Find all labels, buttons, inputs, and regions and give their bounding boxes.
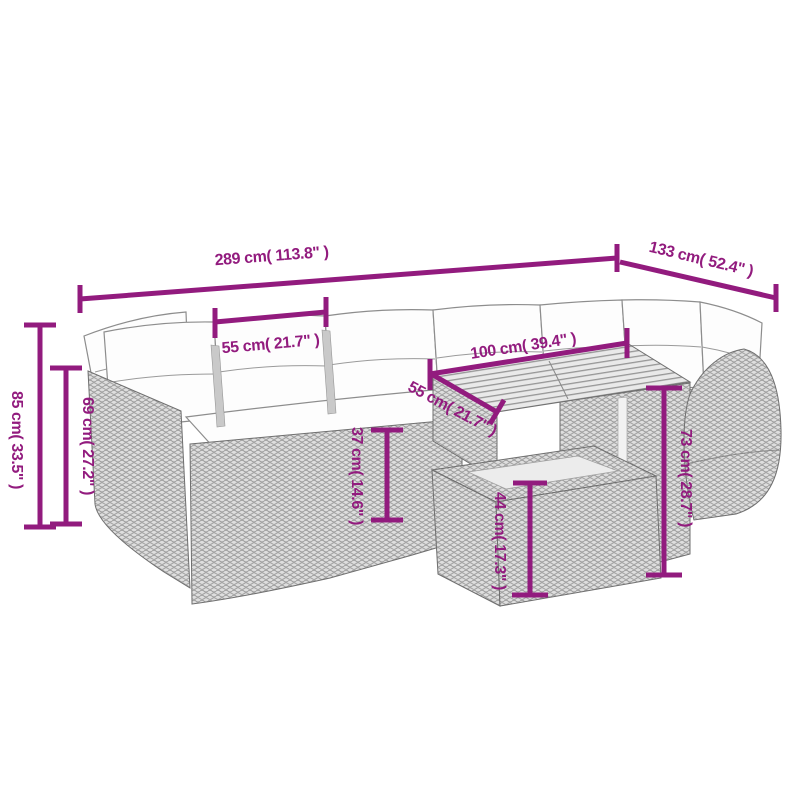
dimension-label: 289 cm( 113.8" )	[214, 244, 329, 270]
diagram-canvas: 289 cm( 113.8" ) 133 cm( 52.4" ) 55 cm( …	[0, 0, 800, 800]
sofa-set-illustration	[84, 300, 781, 606]
sofa-base-front	[190, 419, 462, 604]
dimension-label: 69 cm( 27.2" )	[79, 397, 96, 495]
product-dimension-diagram: 289 cm( 113.8" ) 133 cm( 52.4" ) 55 cm( …	[0, 0, 800, 800]
dimension-label: 37 cm( 14.6" )	[348, 427, 365, 525]
dimension-label: 44 cm( 17.3" )	[491, 492, 508, 590]
dimension-label: 85 cm( 33.5" )	[8, 391, 25, 489]
dimension-overall-width: 289 cm( 113.8" )	[80, 244, 617, 313]
dimension-line	[80, 258, 617, 299]
dimension-overall-height: 85 cm( 33.5" )	[8, 325, 56, 527]
dimension-label: 73 cm( 28.7" )	[677, 429, 694, 527]
